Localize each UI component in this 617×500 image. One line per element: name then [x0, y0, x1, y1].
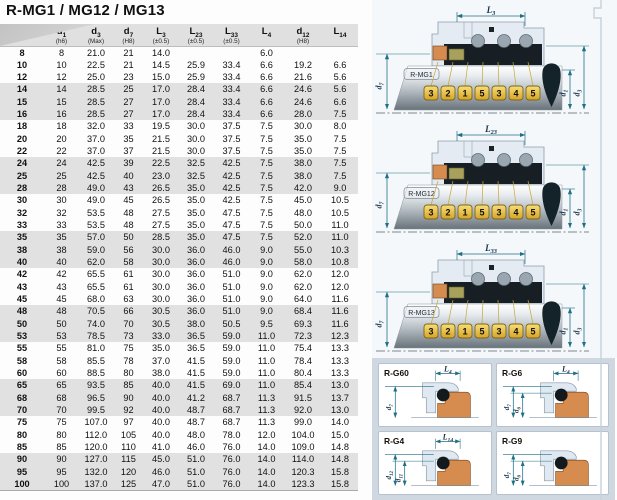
table-cell: 68.0 — [79, 293, 113, 305]
table-cell: 45 — [113, 194, 144, 206]
table-cell: 37.0 — [79, 133, 113, 145]
table-cell: 9.0 — [249, 244, 284, 256]
table-cell: 33.0 — [144, 330, 178, 342]
table-cell: 8 — [44, 46, 79, 59]
table-cell: 58 — [113, 256, 144, 268]
table-cell: 32 — [44, 207, 79, 219]
table-row: 585885.57837.041.559.011.078.413.3 — [0, 355, 358, 367]
table-cell: 38 — [0, 244, 44, 256]
table-cell: 68 — [0, 392, 44, 404]
svg-text:4: 4 — [513, 208, 518, 218]
svg-text:3: 3 — [428, 208, 433, 218]
table-cell: 91.5 — [284, 392, 322, 404]
table-cell: 80.4 — [284, 367, 322, 379]
table-cell: 15 — [44, 96, 79, 108]
table-cell: 28.5 — [144, 231, 178, 243]
table-cell: 12.3 — [322, 330, 358, 342]
table-cell: 8.0 — [322, 120, 358, 132]
table-cell: 25.9 — [178, 59, 214, 71]
svg-text:d7: d7 — [503, 472, 513, 479]
table-cell: 28.4 — [178, 83, 214, 95]
table-cell: 47.5 — [214, 219, 249, 231]
table-cell: 22 — [44, 145, 79, 157]
table-cell: 37.0 — [79, 145, 113, 157]
table-cell: 7.5 — [322, 145, 358, 157]
table-cell: 16 — [0, 108, 44, 120]
table-cell: 21 — [113, 46, 144, 59]
table-cell: 90 — [44, 453, 79, 465]
table-cell: 42.5 — [214, 157, 249, 169]
table-cell: 59.0 — [214, 330, 249, 342]
table-cell: 92.0 — [284, 404, 322, 416]
table-cell: 70 — [113, 318, 144, 330]
table-cell: 53.5 — [79, 207, 113, 219]
table-cell: 53 — [0, 330, 44, 342]
table-cell: 37.0 — [144, 355, 178, 367]
table-cell: 40 — [0, 256, 44, 268]
table-row: 151528.52717.028.433.46.624.66.6 — [0, 96, 358, 108]
svg-text:3: 3 — [496, 327, 501, 337]
seal-diagram-R-MG12: R-MG123215345L23d7d1d3 — [374, 121, 592, 239]
table-cell: 80 — [44, 429, 79, 441]
table-cell: 18 — [0, 120, 44, 132]
table-cell: 70.5 — [79, 305, 113, 317]
table-cell: 95 — [44, 466, 79, 478]
table-cell: 19.2 — [284, 59, 322, 71]
table-cell: 13.3 — [322, 342, 358, 354]
table-cell: 23 — [113, 71, 144, 83]
table-cell: 9.0 — [249, 293, 284, 305]
table-cell: 20 — [44, 133, 79, 145]
table-cell: 42.5 — [79, 157, 113, 169]
table-cell: 35.0 — [284, 133, 322, 145]
table-cell: 109.0 — [284, 441, 322, 453]
table-cell: 35.0 — [178, 194, 214, 206]
table-cell: 43 — [113, 182, 144, 194]
table-cell: 41.5 — [178, 355, 214, 367]
table-cell: 10.3 — [322, 244, 358, 256]
table-cell: 97 — [113, 416, 144, 428]
table-cell: 36.0 — [178, 281, 214, 293]
table-cell: 11.3 — [249, 392, 284, 404]
table-cell: 68 — [44, 392, 79, 404]
table-cell: 10.5 — [322, 194, 358, 206]
table-cell: 7.5 — [249, 157, 284, 169]
table-cell: 7.5 — [322, 108, 358, 120]
table-cell: 69.3 — [284, 318, 322, 330]
table-cell: 11.0 — [322, 231, 358, 243]
svg-text:5: 5 — [479, 208, 484, 218]
table-cell: 38 — [44, 244, 79, 256]
svg-text:4: 4 — [513, 327, 518, 337]
column-header-L23: L23(±0.5) — [178, 24, 214, 46]
svg-text:R-G60: R-G60 — [384, 368, 409, 378]
table-cell: 78.0 — [214, 429, 249, 441]
table-cell: 14.0 — [249, 478, 284, 491]
svg-text:d3: d3 — [573, 89, 584, 96]
table-row: 9595132.012046.051.076.014.0120.315.8 — [0, 466, 358, 478]
table-cell: 78.5 — [79, 330, 113, 342]
table-cell: 48 — [113, 219, 144, 231]
table-cell: 46.0 — [214, 244, 249, 256]
table-cell: 63 — [113, 293, 144, 305]
table-row: 141428.52517.028.433.46.624.65.6 — [0, 83, 358, 95]
seat-card-R-G6: R-G6L4d7d6 — [496, 363, 610, 427]
table-cell: 7.5 — [249, 133, 284, 145]
table-cell: 95 — [0, 466, 44, 478]
table-cell: 36.0 — [178, 305, 214, 317]
table-cell: 13.3 — [322, 367, 358, 379]
table-cell — [284, 46, 322, 59]
table-cell: 13.3 — [322, 355, 358, 367]
table-cell: 59.0 — [214, 355, 249, 367]
table-cell: 14.8 — [322, 441, 358, 453]
svg-text:5: 5 — [479, 327, 484, 337]
table-cell: 15.0 — [144, 71, 178, 83]
table-cell: 11.6 — [322, 318, 358, 330]
table-cell: 40 — [113, 170, 144, 182]
table-cell: 5.6 — [322, 71, 358, 83]
seal-diagram-R-MG13: R-MG133215345L33d7d1d3 — [374, 240, 592, 358]
table-cell: 17.0 — [144, 108, 178, 120]
table-row: 484870.56630.536.051.09.068.411.6 — [0, 305, 358, 317]
table-cell: 42.5 — [214, 182, 249, 194]
table-cell: 65.5 — [79, 268, 113, 280]
table-cell: 51.0 — [214, 305, 249, 317]
svg-text:R-MG1: R-MG1 — [410, 72, 433, 79]
table-cell: 53 — [44, 330, 79, 342]
table-cell: 53.5 — [79, 219, 113, 231]
table-cell: 46.0 — [178, 441, 214, 453]
table-cell: 33.4 — [214, 83, 249, 95]
table-cell: 13.0 — [322, 379, 358, 391]
table-cell: 85.4 — [284, 379, 322, 391]
table-cell: 33 — [0, 219, 44, 231]
table-cell: 11.3 — [249, 416, 284, 428]
seat-diagram-R-G4: R-G4L14d12d11 — [379, 432, 491, 494]
table-cell: 37.5 — [214, 133, 249, 145]
table-cell: 11.6 — [322, 305, 358, 317]
table-cell: 19.5 — [144, 120, 178, 132]
table-cell: 51.0 — [214, 268, 249, 280]
svg-text:L33: L33 — [484, 243, 497, 255]
column-header-d3: d3(Max) — [79, 24, 113, 46]
table-cell: 35.0 — [144, 342, 178, 354]
table-row: 101022.52114.525.933.46.619.26.6 — [0, 59, 358, 71]
table-cell: 78 — [113, 355, 144, 367]
table-cell: 24 — [44, 157, 79, 169]
catalog-page: R-MG1 / MG12 / MG13 d1(h6)d3(Max)d7(H8)L… — [0, 0, 617, 500]
svg-text:d7: d7 — [375, 81, 386, 89]
svg-text:R-MG13: R-MG13 — [408, 310, 435, 317]
table-cell: 42.5 — [79, 170, 113, 182]
table-cell: 105 — [113, 429, 144, 441]
table-cell: 40.0 — [144, 429, 178, 441]
table-cell: 45 — [0, 293, 44, 305]
table-cell: 80 — [0, 429, 44, 441]
table-cell: 64.0 — [284, 293, 322, 305]
table-row: 8821.02114.06.0 — [0, 46, 358, 59]
seal-diagrams-panel: R-MG13215345L3d7d1d3R-MG123215345L23d7d1… — [372, 0, 617, 358]
table-row: 8585120.011041.046.076.014.0109.014.8 — [0, 441, 358, 453]
table-cell: 5.6 — [322, 83, 358, 95]
table-cell: 51.0 — [178, 453, 214, 465]
table-cell: 35.0 — [178, 219, 214, 231]
table-cell: 30.0 — [178, 133, 214, 145]
table-cell: 85 — [113, 379, 144, 391]
table-cell: 35.0 — [178, 231, 214, 243]
table-row: 7575107.09740.048.768.711.399.014.0 — [0, 416, 358, 428]
svg-text:5: 5 — [530, 208, 535, 218]
table-cell: 17.0 — [144, 96, 178, 108]
table-cell: 61 — [113, 281, 144, 293]
table-cell: 58 — [44, 355, 79, 367]
table-cell: 14.8 — [322, 453, 358, 465]
table-row: 242442.53922.532.542.57.538.07.5 — [0, 157, 358, 169]
svg-text:1: 1 — [462, 89, 467, 99]
table-cell: 6.6 — [249, 108, 284, 120]
table-cell: 49.0 — [79, 194, 113, 206]
table-cell: 62.0 — [284, 281, 322, 293]
table-row: 100100137.012547.051.076.014.0123.315.8 — [0, 478, 358, 491]
table-cell: 12 — [44, 71, 79, 83]
table-cell: 30.0 — [144, 268, 178, 280]
table-cell: 11.6 — [322, 293, 358, 305]
table-cell: 10 — [0, 59, 44, 71]
table-cell: 57.0 — [79, 231, 113, 243]
table-cell: 48.7 — [178, 404, 214, 416]
table-row: 505074.07030.538.050.59.569.311.6 — [0, 318, 358, 330]
table-cell: 33 — [113, 120, 144, 132]
table-cell: 28.4 — [178, 96, 214, 108]
svg-text:3: 3 — [496, 208, 501, 218]
table-cell: 9.0 — [249, 305, 284, 317]
svg-text:R-G6: R-G6 — [502, 368, 522, 378]
table-cell: 68.7 — [214, 404, 249, 416]
table-cell: 51.0 — [214, 281, 249, 293]
table-cell: 92 — [113, 404, 144, 416]
seat-card-R-G60: R-G60L4d7 — [378, 363, 492, 427]
table-row: 323253.54827.535.047.57.548.010.5 — [0, 207, 358, 219]
table-cell: 7.5 — [249, 231, 284, 243]
table-cell: 16 — [44, 108, 79, 120]
table-cell: 12.0 — [322, 281, 358, 293]
table-cell: 76.0 — [214, 441, 249, 453]
table-cell: 7.5 — [249, 207, 284, 219]
svg-text:L3: L3 — [486, 5, 496, 17]
table-cell: 99.0 — [284, 416, 322, 428]
table-row: 333353.54827.535.047.57.550.011.0 — [0, 219, 358, 231]
table-cell: 78.4 — [284, 355, 322, 367]
table-cell: 132.0 — [79, 466, 113, 478]
table-cell: 40.0 — [144, 416, 178, 428]
table-cell: 21.0 — [79, 46, 113, 59]
table-cell: 35 — [44, 231, 79, 243]
table-row: 383859.05630.036.046.09.055.010.3 — [0, 244, 358, 256]
table-cell: 59.0 — [79, 244, 113, 256]
table-cell: 76.0 — [214, 466, 249, 478]
table-cell: 14.0 — [322, 416, 358, 428]
table-cell: 6.6 — [249, 96, 284, 108]
table-cell: 76.0 — [214, 478, 249, 491]
table-cell: 27 — [113, 96, 144, 108]
table-cell: 43 — [44, 281, 79, 293]
table-cell: 30.5 — [144, 305, 178, 317]
svg-text:d7: d7 — [503, 404, 513, 411]
seat-diagram-R-G60: R-G60L4d7 — [379, 364, 491, 426]
table-cell: 6.6 — [249, 71, 284, 83]
table-cell: 28.0 — [284, 108, 322, 120]
table-cell: 27.5 — [144, 207, 178, 219]
table-cell: 50 — [113, 231, 144, 243]
table-cell: 6.6 — [249, 83, 284, 95]
table-row: 454568.06330.036.051.09.064.011.6 — [0, 293, 358, 305]
table-cell: 39 — [113, 157, 144, 169]
table-cell: 12.0 — [322, 268, 358, 280]
table-row: 202037.03521.530.037.57.535.07.5 — [0, 133, 358, 145]
table-cell: 75.4 — [284, 342, 322, 354]
table-cell: 22 — [0, 145, 44, 157]
page-title: R-MG1 / MG12 / MG13 — [6, 2, 165, 19]
table-cell: 15.0 — [322, 429, 358, 441]
seal-diagram-R-MG1: R-MG13215345L3d7d1d3 — [374, 2, 592, 120]
table-cell: 115 — [113, 453, 144, 465]
table-cell: 6.6 — [322, 59, 358, 71]
table-cell: 21.5 — [144, 133, 178, 145]
table-row: 404062.05830.036.046.09.058.010.8 — [0, 256, 358, 268]
table-row: 303049.04526.535.042.57.545.010.5 — [0, 194, 358, 206]
table-cell: 15 — [0, 96, 44, 108]
table-cell: 125 — [113, 478, 144, 491]
table-cell: 14.0 — [249, 441, 284, 453]
table-cell: 21.5 — [144, 145, 178, 157]
table-cell: 47.0 — [144, 478, 178, 491]
table-cell: 75 — [0, 416, 44, 428]
table-cell: 28.4 — [178, 108, 214, 120]
table-cell: 48.0 — [284, 207, 322, 219]
svg-text:d7: d7 — [375, 319, 386, 327]
table-cell: 74.0 — [79, 318, 113, 330]
table-cell: 30.0 — [144, 256, 178, 268]
table-cell: 68.7 — [214, 392, 249, 404]
table-cell: 72.3 — [284, 330, 322, 342]
table-cell: 88.5 — [79, 367, 113, 379]
table-cell: 96.5 — [79, 392, 113, 404]
table-cell: 35.0 — [284, 145, 322, 157]
svg-text:d3: d3 — [573, 327, 584, 334]
table-cell: 42 — [44, 268, 79, 280]
table-row: 424265.56130.036.051.09.062.012.0 — [0, 268, 358, 280]
table-cell: 51.0 — [178, 478, 214, 491]
table-cell: 75 — [113, 342, 144, 354]
table-cell: 21 — [113, 59, 144, 71]
table-cell: 11.0 — [249, 379, 284, 391]
table-cell: 37.5 — [214, 120, 249, 132]
table-cell: 26.5 — [144, 182, 178, 194]
seat-card-R-G4: R-G4L14d12d11 — [378, 431, 492, 495]
table-cell: 40 — [44, 256, 79, 268]
table-cell: 56 — [113, 244, 144, 256]
table-cell: 90 — [0, 453, 44, 465]
column-header-d7: d7(H8) — [113, 24, 144, 46]
table-cell: 58 — [0, 355, 44, 367]
table-cell: 41.0 — [144, 441, 178, 453]
table-cell: 81.0 — [79, 342, 113, 354]
table-cell: 32 — [0, 207, 44, 219]
table-cell: 85 — [44, 441, 79, 453]
table-cell: 85.5 — [79, 355, 113, 367]
table-cell: 76.0 — [214, 453, 249, 465]
table-cell: 107.0 — [79, 416, 113, 428]
table-cell: 100 — [0, 478, 44, 491]
table-cell: 21.6 — [284, 71, 322, 83]
table-cell: 42 — [0, 268, 44, 280]
table-cell: 27 — [113, 108, 144, 120]
table-cell: 52.0 — [284, 231, 322, 243]
table-cell: 50 — [0, 318, 44, 330]
table-cell: 14.5 — [144, 59, 178, 71]
svg-text:R-G9: R-G9 — [502, 436, 522, 446]
table-cell: 48.0 — [178, 429, 214, 441]
table-cell: 14 — [0, 83, 44, 95]
table-cell: 80 — [113, 367, 144, 379]
table-cell: 15.8 — [322, 478, 358, 491]
table-row: 252542.54023.032.542.57.538.07.5 — [0, 170, 358, 182]
table-cell: 10.5 — [322, 207, 358, 219]
table-row: 707099.59240.048.768.711.392.013.0 — [0, 404, 358, 416]
table-cell: 38.0 — [178, 318, 214, 330]
table-cell: 45.0 — [144, 453, 178, 465]
table-cell: 51.0 — [178, 466, 214, 478]
svg-text:5: 5 — [479, 89, 484, 99]
table-cell: 46.0 — [214, 256, 249, 268]
table-cell: 47.5 — [214, 207, 249, 219]
table-cell: 10.8 — [322, 256, 358, 268]
table-cell: 30.0 — [178, 145, 214, 157]
table-cell: 40.0 — [144, 379, 178, 391]
table-cell: 30.0 — [144, 244, 178, 256]
table-cell: 48.7 — [178, 416, 214, 428]
table-cell: 48 — [44, 305, 79, 317]
table-cell: 30.0 — [178, 120, 214, 132]
table-cell: 7.5 — [322, 157, 358, 169]
seat-card-R-G9: R-G9d7d6 — [496, 431, 610, 495]
table-cell: 69.0 — [214, 379, 249, 391]
table-cell: 30 — [0, 194, 44, 206]
table-cell: 25 — [113, 83, 144, 95]
table-cell: 36.0 — [178, 256, 214, 268]
table-cell: 37.5 — [214, 145, 249, 157]
table-cell: 7.5 — [322, 133, 358, 145]
table-cell: 30.5 — [144, 318, 178, 330]
table-cell: 35 — [0, 231, 44, 243]
table-cell: 61 — [113, 268, 144, 280]
svg-text:5: 5 — [530, 89, 535, 99]
svg-text:d7: d7 — [385, 404, 395, 411]
table-cell: 11.0 — [249, 355, 284, 367]
table-cell: 123.3 — [284, 478, 322, 491]
svg-text:1: 1 — [462, 327, 467, 337]
table-cell: 59.0 — [214, 367, 249, 379]
table-cell: 40.0 — [144, 404, 178, 416]
table-cell: 36.5 — [178, 342, 214, 354]
table-cell: 33 — [44, 219, 79, 231]
table-cell: 33.4 — [214, 96, 249, 108]
table-cell: 7.5 — [249, 170, 284, 182]
svg-text:d6: d6 — [512, 407, 522, 414]
table-cell: 28 — [0, 182, 44, 194]
svg-text:d6: d6 — [512, 475, 522, 482]
